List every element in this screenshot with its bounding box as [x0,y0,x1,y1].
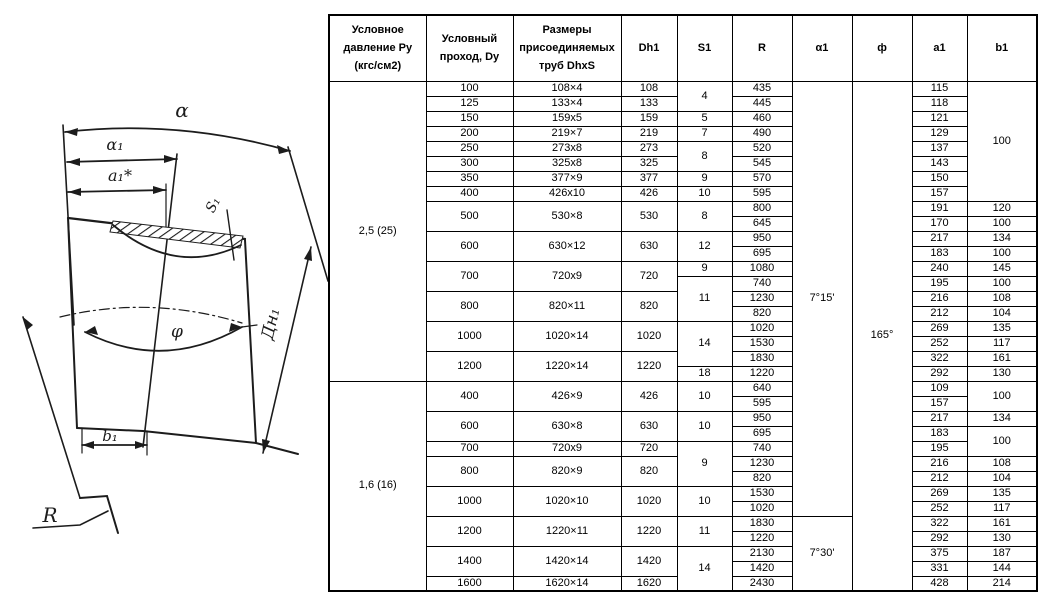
cell-dh1: 159 [621,111,677,126]
cell-r: 595 [732,186,792,201]
dimensions-table: Условное давление Ру (кгс/см2) Условный … [328,14,1038,592]
cell-r: 1830 [732,516,792,531]
cell-dh1: 1220 [621,516,677,546]
cell-r: 645 [732,216,792,231]
cell-dy: 500 [426,201,513,231]
cell-a1: 269 [912,321,967,336]
dn1-arrow-top [304,247,312,261]
cell-r: 1420 [732,561,792,576]
cell-a1: 121 [912,111,967,126]
cell-b1: 104 [967,471,1037,486]
cell-dh1: 720 [621,441,677,456]
cell-a1: 170 [912,216,967,231]
cell-dh1: 325 [621,156,677,171]
cell-r: 1220 [732,366,792,381]
cell-s1: 10 [677,381,732,411]
cell-s1: 11 [677,516,732,546]
cell-a1: 269 [912,486,967,501]
page: { "colors": { "line": "#1c1c1c", "border… [0,0,1038,608]
cell-r: 695 [732,426,792,441]
cell-s1: 18 [677,366,732,381]
cell-a1: 129 [912,126,967,141]
cell-r: 800 [732,201,792,216]
cell-dy: 400 [426,186,513,201]
cell-r: 1230 [732,456,792,471]
cell-a1: 212 [912,306,967,321]
cell-dy: 1600 [426,576,513,591]
cell-dy: 1200 [426,516,513,546]
cell-alpha1: 7°30' [792,516,852,591]
cell-dims: 426×9 [513,381,621,411]
cell-dims: 108×4 [513,81,621,96]
cell-r: 460 [732,111,792,126]
cell-dy: 1000 [426,486,513,516]
cell-b1: 100 [967,246,1037,261]
cell-dims: 377×9 [513,171,621,186]
cell-a1: 252 [912,501,967,516]
cell-b1: 117 [967,501,1037,516]
cell-s1: 14 [677,546,732,591]
cell-s1: 12 [677,231,732,261]
cell-a1: 115 [912,81,967,96]
cell-dims: 1020×14 [513,321,621,351]
cell-dy: 350 [426,171,513,186]
cell-b1: 135 [967,321,1037,336]
column-header-dims: Размеры присоединяемых труб DhxS [513,15,621,81]
cell-a1: 109 [912,381,967,396]
r-radius-line [23,317,80,498]
cell-b1: 135 [967,486,1037,501]
cell-dh1: 108 [621,81,677,96]
a1-star-dim-label: a₁* [108,166,132,185]
table-row: 12001220×1112201118307°30'322161 [329,516,1037,531]
cell-a1: 331 [912,561,967,576]
cell-dh1: 1420 [621,546,677,576]
cell-b1: 161 [967,351,1037,366]
a1-star-dimension-line [68,190,166,192]
cell-b1: 130 [967,531,1037,546]
cell-b1: 104 [967,306,1037,321]
cell-r: 520 [732,141,792,156]
cell-a1: 240 [912,261,967,276]
cell-r: 445 [732,96,792,111]
cell-dims: 426x10 [513,186,621,201]
table-row: 10001020×101020101530269135 [329,486,1037,501]
cell-dims: 1220×14 [513,351,621,381]
cell-s1: 11 [677,276,732,321]
column-header-alpha1: α1 [792,15,852,81]
cell-dy: 800 [426,456,513,486]
cell-r: 695 [732,246,792,261]
cell-r: 2430 [732,576,792,591]
cell-s1: 14 [677,321,732,366]
cell-b1: 100 [967,216,1037,231]
cell-dh1: 1020 [621,321,677,351]
cell-a1: 157 [912,186,967,201]
cell-a1: 137 [912,141,967,156]
cell-a1: 322 [912,351,967,366]
column-header-r: R [732,15,792,81]
cell-s1: 10 [677,486,732,516]
cell-b1: 100 [967,381,1037,411]
dn1-dimension-line [263,247,311,453]
header-row: Условное давление Ру (кгс/см2) Условный … [329,15,1037,81]
a1-star-arrow-right [153,186,166,194]
cell-s1: 5 [677,111,732,126]
cell-b1: 120 [967,201,1037,216]
cell-dh1: 820 [621,291,677,321]
cell-dy: 800 [426,291,513,321]
cell-r: 1020 [732,321,792,336]
b1-arrow-left [82,441,94,449]
cell-dh1: 219 [621,126,677,141]
cell-dims: 720x9 [513,441,621,456]
cell-a1: 191 [912,201,967,216]
cell-dy: 1400 [426,546,513,576]
cell-r: 1530 [732,486,792,501]
cell-dy: 700 [426,441,513,456]
table-row: 600630×1263012950217134 [329,231,1037,246]
cell-dy: 100 [426,81,513,96]
alpha1-dim-label: α₁ [106,135,123,154]
cell-dh1: 530 [621,201,677,231]
cell-s1: 9 [677,261,732,276]
cell-a1: 118 [912,96,967,111]
table-row: 600630×863010950217134 [329,411,1037,426]
cell-dims: 630×8 [513,411,621,441]
table-row: 1,6 (16)400426×942610640109100 [329,381,1037,396]
cell-b1: 214 [967,576,1037,591]
alpha-dim-label: α [175,98,189,122]
cell-s1: 10 [677,411,732,441]
cell-dy: 200 [426,126,513,141]
column-header-dy: Условный проход, Dy [426,15,513,81]
cell-dh1: 426 [621,381,677,411]
cell-s1: 7 [677,126,732,141]
cell-r: 740 [732,441,792,456]
cell-a1: 150 [912,171,967,186]
radial-center-line [143,154,177,447]
cell-dy: 250 [426,141,513,156]
cell-dims: 1220×11 [513,516,621,546]
cell-r: 740 [732,276,792,291]
cell-a1: 216 [912,456,967,471]
cell-dims: 219×7 [513,126,621,141]
table-row: 350377×93779570150 [329,171,1037,186]
segment-left-edge [68,218,77,428]
cell-phi: 165° [852,81,912,591]
segment-right-edge [245,240,256,443]
table-row: 400426x1042610595157 [329,186,1037,201]
cell-r: 545 [732,156,792,171]
cell-dy: 150 [426,111,513,126]
cell-dims: 1020×10 [513,486,621,516]
cell-b1: 130 [967,366,1037,381]
cell-dh1: 630 [621,411,677,441]
cell-s1: 4 [677,81,732,111]
cell-s1: 9 [677,171,732,186]
column-header-a1: a1 [912,15,967,81]
cell-r: 1220 [732,531,792,546]
cell-a1: 428 [912,576,967,591]
column-header-pressure: Условное давление Ру (кгс/см2) [329,15,426,81]
cell-dh1: 630 [621,231,677,261]
cell-dh1: 377 [621,171,677,186]
cell-r: 1020 [732,501,792,516]
alpha1-arrow-left [67,158,80,166]
cell-a1: 252 [912,336,967,351]
cell-dy: 700 [426,261,513,291]
cell-r: 595 [732,396,792,411]
cell-b1: 100 [967,276,1037,291]
cell-a1: 292 [912,366,967,381]
cell-dims: 273x8 [513,141,621,156]
cell-b1: 161 [967,516,1037,531]
table-body: 2,5 (25)100108×410844357°15'165°11510012… [329,81,1037,591]
cell-dims: 630×12 [513,231,621,261]
r-dim-label: R [41,503,57,527]
cell-r: 1230 [732,291,792,306]
cell-a1: 322 [912,516,967,531]
cell-a1: 375 [912,546,967,561]
b1-dim-label: b₁ [102,427,118,445]
b1-arrow-right [135,441,147,449]
column-header-s1: S1 [677,15,732,81]
cell-dh1: 273 [621,141,677,156]
table-row: 150159x51595460121 [329,111,1037,126]
cell-a1: 212 [912,471,967,486]
cell-a1: 217 [912,231,967,246]
column-header-b1: b1 [967,15,1037,81]
cell-r: 820 [732,306,792,321]
cell-dy: 400 [426,381,513,411]
cell-r: 570 [732,171,792,186]
cell-dims: 1420×14 [513,546,621,576]
cell-a1: 217 [912,411,967,426]
cell-dims: 325x8 [513,156,621,171]
cell-dh1: 820 [621,456,677,486]
cell-dims: 820×11 [513,291,621,321]
weld-seam-hatch [110,221,243,248]
cell-b1: 117 [967,336,1037,351]
cell-s1: 8 [677,141,732,171]
cell-a1: 195 [912,276,967,291]
r-corner-mark [80,496,118,533]
cell-alpha1: 7°15' [792,81,852,516]
cell-dh1: 426 [621,186,677,201]
cell-dh1: 133 [621,96,677,111]
cell-r: 1530 [732,336,792,351]
cell-dh1: 1020 [621,486,677,516]
cell-r: 1080 [732,261,792,276]
table-row: 14001420×141420142130375187 [329,546,1037,561]
cell-dy: 300 [426,156,513,171]
cell-b1: 134 [967,231,1037,246]
cell-b1: 100 [967,81,1037,201]
cell-a1: 183 [912,426,967,441]
cell-dy: 600 [426,231,513,261]
column-header-dh1: Dh1 [621,15,677,81]
cell-dy: 1200 [426,351,513,381]
table-row: 10001020×141020141020269135 [329,321,1037,336]
table-row: 250273x82738520137 [329,141,1037,156]
cell-a1: 157 [912,396,967,411]
cell-dims: 159x5 [513,111,621,126]
cell-s1: 8 [677,201,732,231]
cell-a1: 195 [912,441,967,456]
column-header-phi: ф [852,15,912,81]
cell-dy: 1000 [426,321,513,351]
cell-r: 1830 [732,351,792,366]
cell-b1: 100 [967,426,1037,456]
cell-b1: 144 [967,561,1037,576]
cell-dh1: 1220 [621,351,677,381]
cell-r: 490 [732,126,792,141]
cell-dh1: 720 [621,261,677,291]
alpha-dimension-arc [65,128,290,151]
cell-dims: 530×8 [513,201,621,231]
cell-r: 2130 [732,546,792,561]
cell-a1: 292 [912,531,967,546]
cell-dh1: 1620 [621,576,677,591]
cell-pressure: 1,6 (16) [329,381,426,591]
cell-r: 950 [732,231,792,246]
pipe-bend-drawing: α α₁ a₁* S₁ Дн₁ φ b₁ R [10,85,330,575]
cell-a1: 143 [912,156,967,171]
cell-a1: 216 [912,291,967,306]
cell-s1: 10 [677,186,732,201]
table-row: 700720x97209740195 [329,441,1037,456]
centerline-dashdot-arc [60,307,242,323]
cell-dims: 1620×14 [513,576,621,591]
cell-dims: 133×4 [513,96,621,111]
cell-b1: 145 [967,261,1037,276]
cell-b1: 187 [967,546,1037,561]
cell-r: 950 [732,411,792,426]
cell-a1: 183 [912,246,967,261]
cell-s1: 9 [677,441,732,486]
cell-dy: 600 [426,411,513,441]
cell-r: 435 [732,81,792,96]
table-row: 200219×72197490129 [329,126,1037,141]
alpha-arrow-left [65,128,78,136]
s1-dim-label: S₁ [203,195,224,216]
table-row: 2,5 (25)100108×410844357°15'165°115100 [329,81,1037,96]
alpha1-arrow-right [164,155,177,163]
cell-b1: 134 [967,411,1037,426]
cell-b1: 108 [967,456,1037,471]
cell-b1: 108 [967,291,1037,306]
phi-angle-arc [85,327,242,351]
cell-dims: 820×9 [513,456,621,486]
cell-pressure: 2,5 (25) [329,81,426,381]
cell-dy: 125 [426,96,513,111]
cell-r: 640 [732,381,792,396]
phi-dim-label: φ [171,322,183,342]
dn1-dim-label: Дн₁ [258,306,285,343]
cell-r: 820 [732,471,792,486]
table-row: 500530×85308800191120 [329,201,1037,216]
table-row: 700720x972091080240145 [329,261,1037,276]
alpha1-dimension-line [67,159,177,162]
cell-dims: 720x9 [513,261,621,291]
a1-star-arrow-left [68,188,81,196]
